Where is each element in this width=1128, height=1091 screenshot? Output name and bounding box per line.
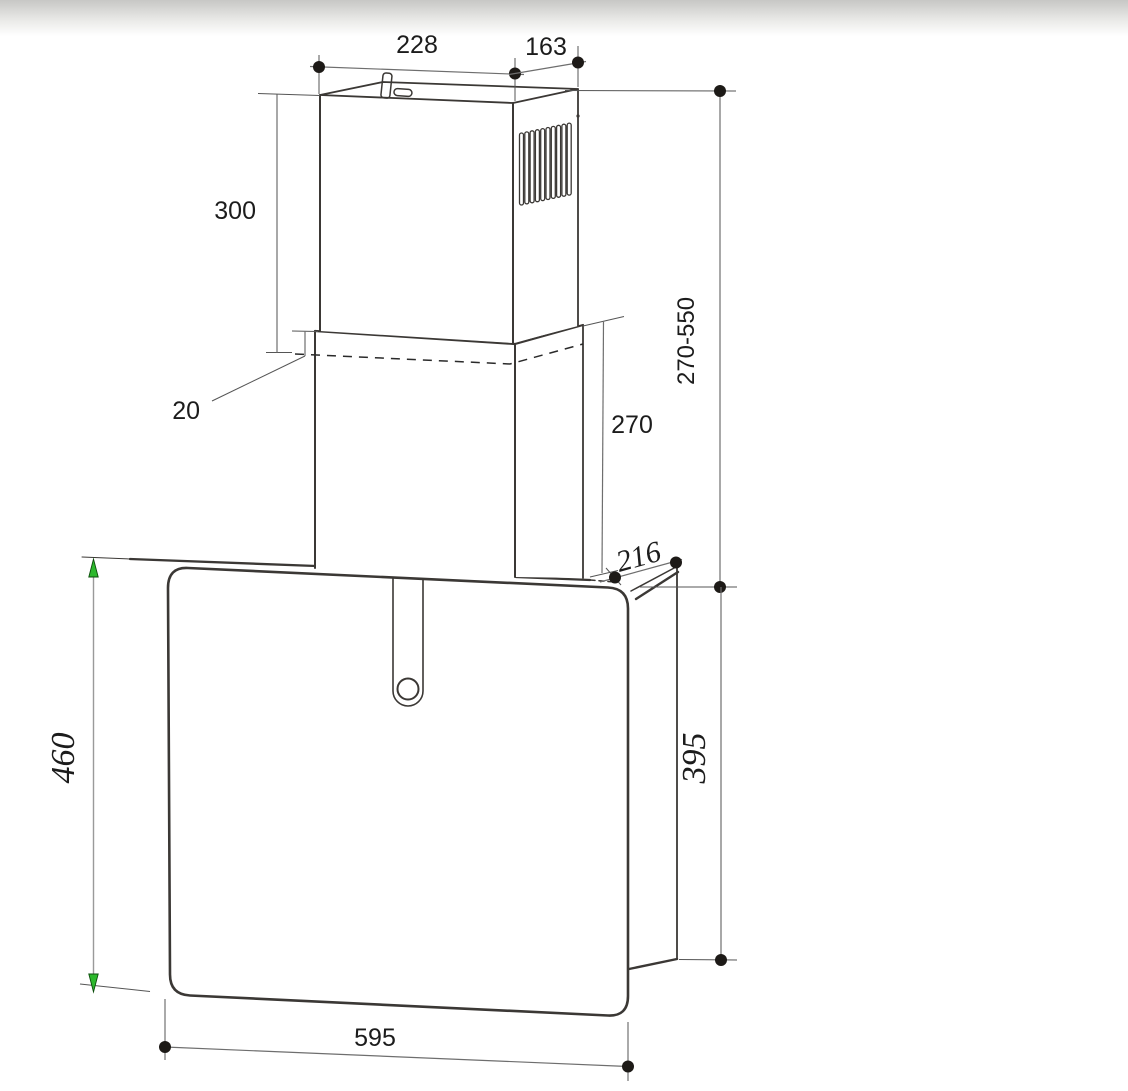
- dim-label-hood-width: 595: [354, 1024, 396, 1052]
- dim-chimney-height-range: 270-550: [565, 85, 737, 593]
- hood-rear-bottom-edge: [629, 959, 677, 969]
- hood-back-top-edge-left: [130, 559, 316, 566]
- vent-grille: [520, 123, 572, 205]
- keyhole-hole: [398, 679, 419, 700]
- dim-upper-chimney-height: 300: [214, 94, 320, 353]
- hood-front-panel: [168, 568, 628, 1016]
- dim-label-top-depth: 163: [525, 33, 567, 61]
- hood-dimension-diagram: 228 163 300 20 270-550 270: [0, 0, 1128, 1091]
- dim-top-depth: 163: [509, 33, 586, 87]
- dim-label-hood-top-depth: 216: [612, 535, 664, 579]
- dim-chimney-overlap: 20: [172, 331, 318, 425]
- dim-label-chimney-height-range: 270-550: [673, 297, 700, 385]
- dim-label-top-width: 228: [396, 31, 438, 59]
- dim-label-upper-chimney-height: 300: [214, 197, 256, 225]
- dim-label-lower-chimney-height: 270: [611, 411, 653, 439]
- dim-label-chimney-overlap: 20: [172, 397, 200, 425]
- hood-top-extension-edge: [82, 557, 130, 559]
- dim-front-panel-height: 460: [45, 559, 150, 992]
- chimney-lower-section: [315, 325, 583, 578]
- dim-rear-height: 395: [676, 587, 737, 966]
- dim-label-front-panel-height: 460: [45, 733, 82, 784]
- chimney-upper-section: [320, 73, 580, 343]
- hood-body: [82, 557, 678, 1016]
- edge-mark: [576, 114, 579, 117]
- dim-label-rear-height: 395: [676, 733, 713, 785]
- arrowhead-down: [89, 974, 98, 992]
- keyhole-slot: [393, 578, 423, 706]
- technical-drawing-page: 228 163 300 20 270-550 270: [0, 0, 1128, 1091]
- scan-artifact-band: [0, 0, 1128, 36]
- arrowhead-up: [89, 559, 98, 577]
- dim-hood-width: 595: [159, 999, 634, 1081]
